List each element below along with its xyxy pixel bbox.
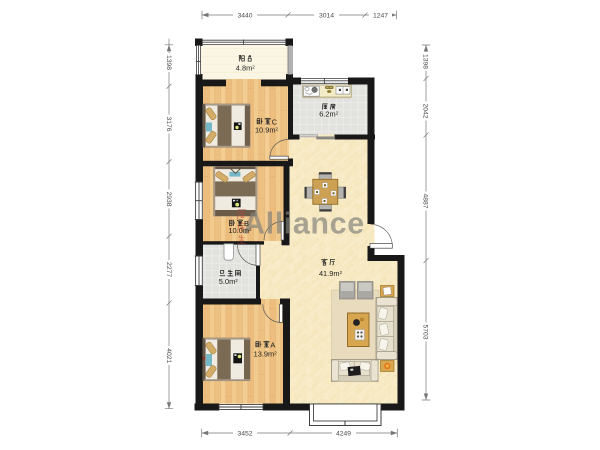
svg-text:Alliance: Alliance xyxy=(243,207,365,241)
svg-text:A: A xyxy=(270,340,275,349)
svg-text:3452: 3452 xyxy=(237,430,252,437)
svg-text:3440: 3440 xyxy=(237,12,252,19)
svg-text:1398: 1398 xyxy=(165,55,172,70)
svg-text:5703: 5703 xyxy=(422,324,429,339)
svg-text:3176: 3176 xyxy=(165,116,172,131)
svg-text:41.9m2: 41.9m2 xyxy=(319,269,343,278)
svg-text:1398: 1398 xyxy=(422,54,429,69)
svg-text:2938: 2938 xyxy=(165,191,172,206)
svg-text:10.0m2: 10.0m2 xyxy=(228,226,252,235)
svg-text:13.9m2: 13.9m2 xyxy=(254,349,278,358)
svg-text:4021: 4021 xyxy=(165,348,172,363)
svg-text:3014: 3014 xyxy=(319,12,334,19)
svg-text:2042: 2042 xyxy=(422,103,429,118)
svg-text:2277: 2277 xyxy=(165,262,172,277)
svg-text:4887: 4887 xyxy=(422,193,429,208)
svg-text:4249: 4249 xyxy=(336,430,351,437)
svg-text:1247: 1247 xyxy=(373,12,388,19)
svg-text:10.9m2: 10.9m2 xyxy=(255,126,279,135)
